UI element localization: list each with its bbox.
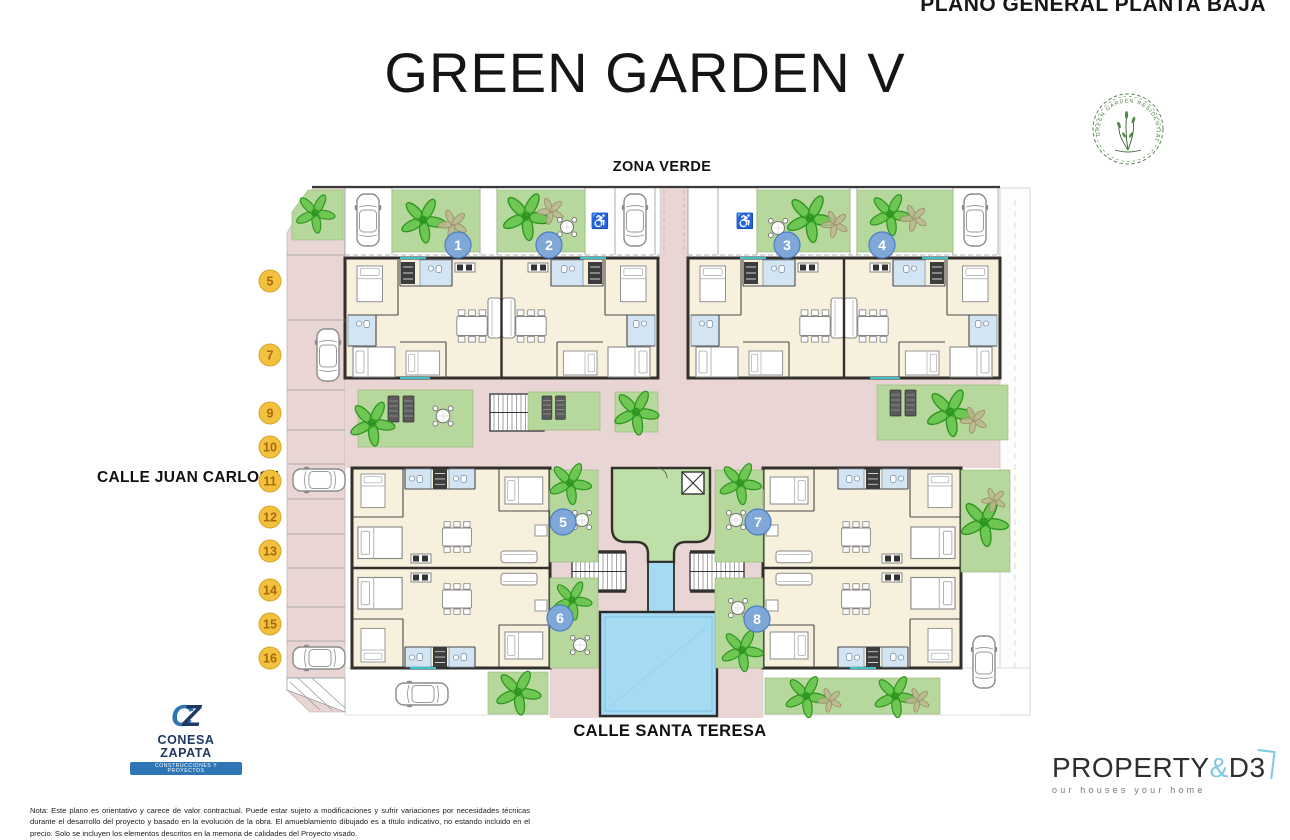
handicap-icon: ♿ — [591, 212, 610, 230]
pool-steps — [648, 562, 674, 614]
plan-sheet-label: PLANO GENERAL PLANTA BAJA — [920, 0, 1266, 17]
svg-text:11: 11 — [263, 475, 276, 489]
builder-tagline: CONSTRUCCIONES Y PROYECTOS — [130, 762, 242, 775]
residential-badge-logo: GREEN GARDEN RESIDENTIAL — [1086, 90, 1170, 168]
handicap-icon: ♿ — [736, 212, 755, 230]
patio-table-icon — [433, 406, 453, 426]
svg-text:8: 8 — [753, 611, 761, 627]
svg-text:12: 12 — [263, 511, 277, 525]
car-icon — [293, 467, 345, 493]
car-icon — [355, 194, 381, 246]
parking-badges: 5 7 9 10 11 12 13 14 15 16 — [259, 270, 281, 669]
car-icon — [971, 636, 997, 688]
svg-text:1: 1 — [454, 237, 462, 253]
building-block-south-west — [352, 468, 550, 668]
builder-name: CONESA ZAPATA — [130, 734, 242, 759]
builder-monogram: CZ — [130, 700, 242, 731]
car-icon — [622, 194, 648, 246]
svg-text:4: 4 — [878, 237, 886, 253]
car-icon — [396, 681, 448, 707]
svg-text:2: 2 — [545, 237, 553, 253]
svg-text:10: 10 — [263, 441, 277, 455]
car-icon — [962, 194, 988, 246]
svg-text:6: 6 — [556, 610, 564, 626]
agency-wordmark: PROPERTY&D3 — [1052, 754, 1266, 782]
svg-text:5: 5 — [559, 514, 567, 530]
svg-text:16: 16 — [263, 652, 277, 666]
floor-plan-drawing: ♿ ♿ — [250, 180, 1040, 725]
patio-table-icon — [557, 217, 576, 236]
svg-text:9: 9 — [267, 407, 274, 421]
agency-tagline: our houses your home — [1052, 786, 1266, 795]
svg-text:14: 14 — [263, 584, 277, 598]
svg-text:3: 3 — [783, 237, 791, 253]
zona-verde-label: ZONA VERDE — [562, 159, 762, 175]
floor-plan-page: { "header": { "plan_label": "PLANO GENER… — [0, 0, 1290, 840]
agency-house-mark — [1254, 749, 1275, 779]
svg-text:15: 15 — [263, 618, 277, 632]
disclaimer-note: Nota: Este plano es orientativo y carece… — [30, 805, 530, 839]
patio-table-icon — [570, 635, 589, 654]
builder-logo: CZ CONESA ZAPATA CONSTRUCCIONES Y PROYEC… — [130, 700, 242, 776]
badge-scallop-outer — [1093, 94, 1163, 164]
agency-logo: PROPERTY&D3 our houses your home — [1052, 754, 1266, 795]
svg-text:7: 7 — [754, 514, 762, 530]
svg-text:5: 5 — [267, 275, 274, 289]
svg-text:7: 7 — [267, 349, 274, 363]
car-icon — [315, 329, 341, 381]
svg-text:13: 13 — [263, 545, 277, 559]
patio-table-icon — [726, 510, 745, 529]
car-icon — [293, 645, 345, 671]
